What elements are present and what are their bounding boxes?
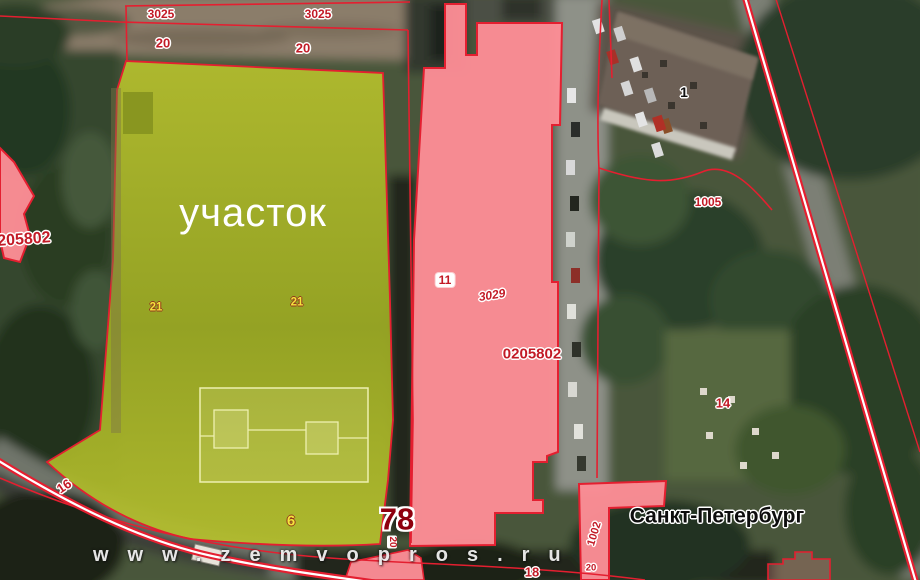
cadastral-map[interactable]: 3025 3025 20 20 участок 21 21 205802 11 … xyxy=(0,0,920,580)
